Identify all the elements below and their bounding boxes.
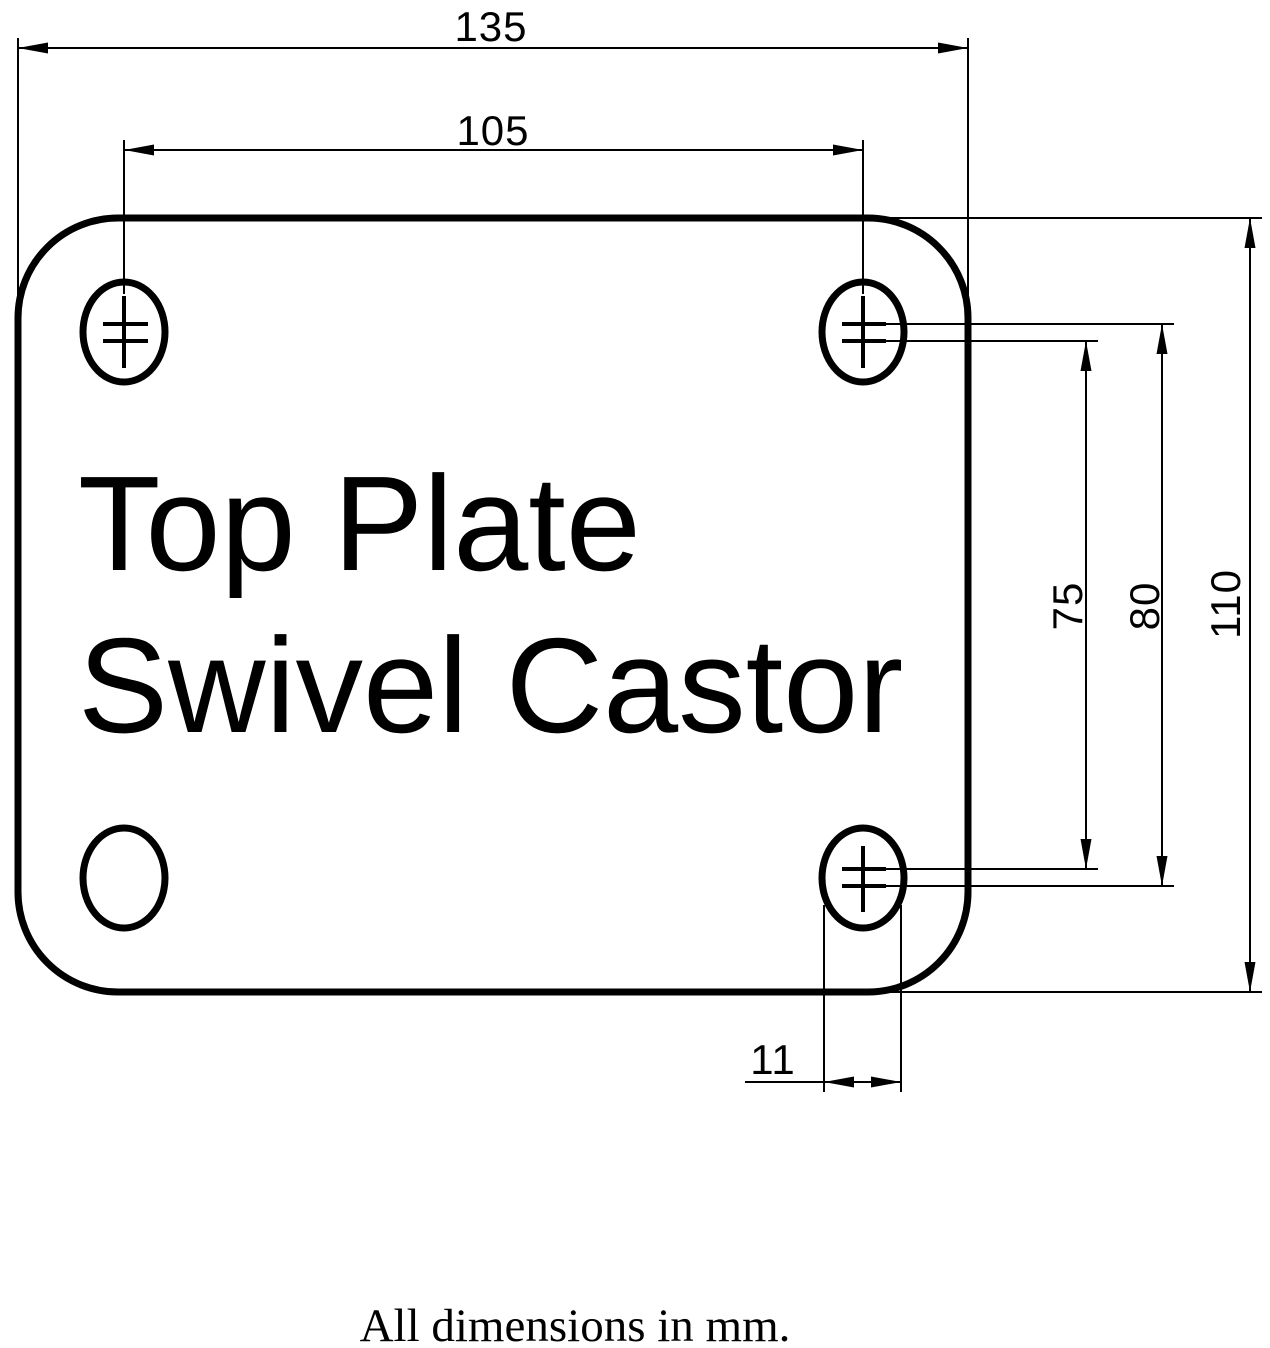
plate-width-dimension-label: 135 [454, 3, 527, 50]
hole-bottom-right-crosshair [842, 846, 886, 912]
part-title-line1: Top Plate [78, 448, 641, 599]
technical-drawing-canvas: 135 105 75 80 [0, 0, 1270, 1348]
arrowhead-up-icon [1245, 218, 1256, 248]
dimension-slot-width: 11 [745, 905, 901, 1092]
arrowhead-up-icon [1081, 341, 1092, 371]
hole-top-right-crosshair [842, 296, 886, 368]
arrowhead-right-icon [833, 145, 863, 156]
units-note: All dimensions in mm. [360, 1300, 791, 1348]
arrowhead-down-icon [1245, 962, 1256, 992]
hole-bottom-left [83, 828, 165, 928]
hole-pitch-inner-dimension-label: 75 [1044, 582, 1091, 631]
slot-width-dimension-label: 11 [750, 1036, 796, 1083]
drawing-page: 135 105 75 80 [0, 0, 1270, 1348]
arrowhead-down-icon [1081, 839, 1092, 869]
dimension-hole-pitch-x: 105 [124, 107, 863, 294]
arrowhead-right-icon [871, 1077, 901, 1088]
dimension-hole-pitch-inner: 75 [886, 341, 1098, 869]
arrowhead-left-icon [18, 43, 48, 54]
hole-pitch-outer-dimension-label: 80 [1121, 582, 1168, 631]
plate-height-dimension-label: 110 [1202, 569, 1249, 639]
arrowhead-down-icon [1157, 856, 1168, 886]
hole-top-left-crosshair [103, 296, 148, 368]
arrowhead-left-icon [124, 145, 154, 156]
part-title-line2: Swivel Castor [78, 610, 903, 761]
part-title: Top Plate Swivel Castor [78, 448, 903, 761]
arrowhead-right-icon [938, 43, 968, 54]
hole-pitch-x-dimension-label: 105 [456, 107, 529, 154]
dimension-hole-pitch-outer: 80 [886, 324, 1174, 886]
arrowhead-left-icon [824, 1077, 854, 1088]
dimension-plate-width: 135 [18, 3, 968, 320]
arrowhead-up-icon [1157, 324, 1168, 354]
